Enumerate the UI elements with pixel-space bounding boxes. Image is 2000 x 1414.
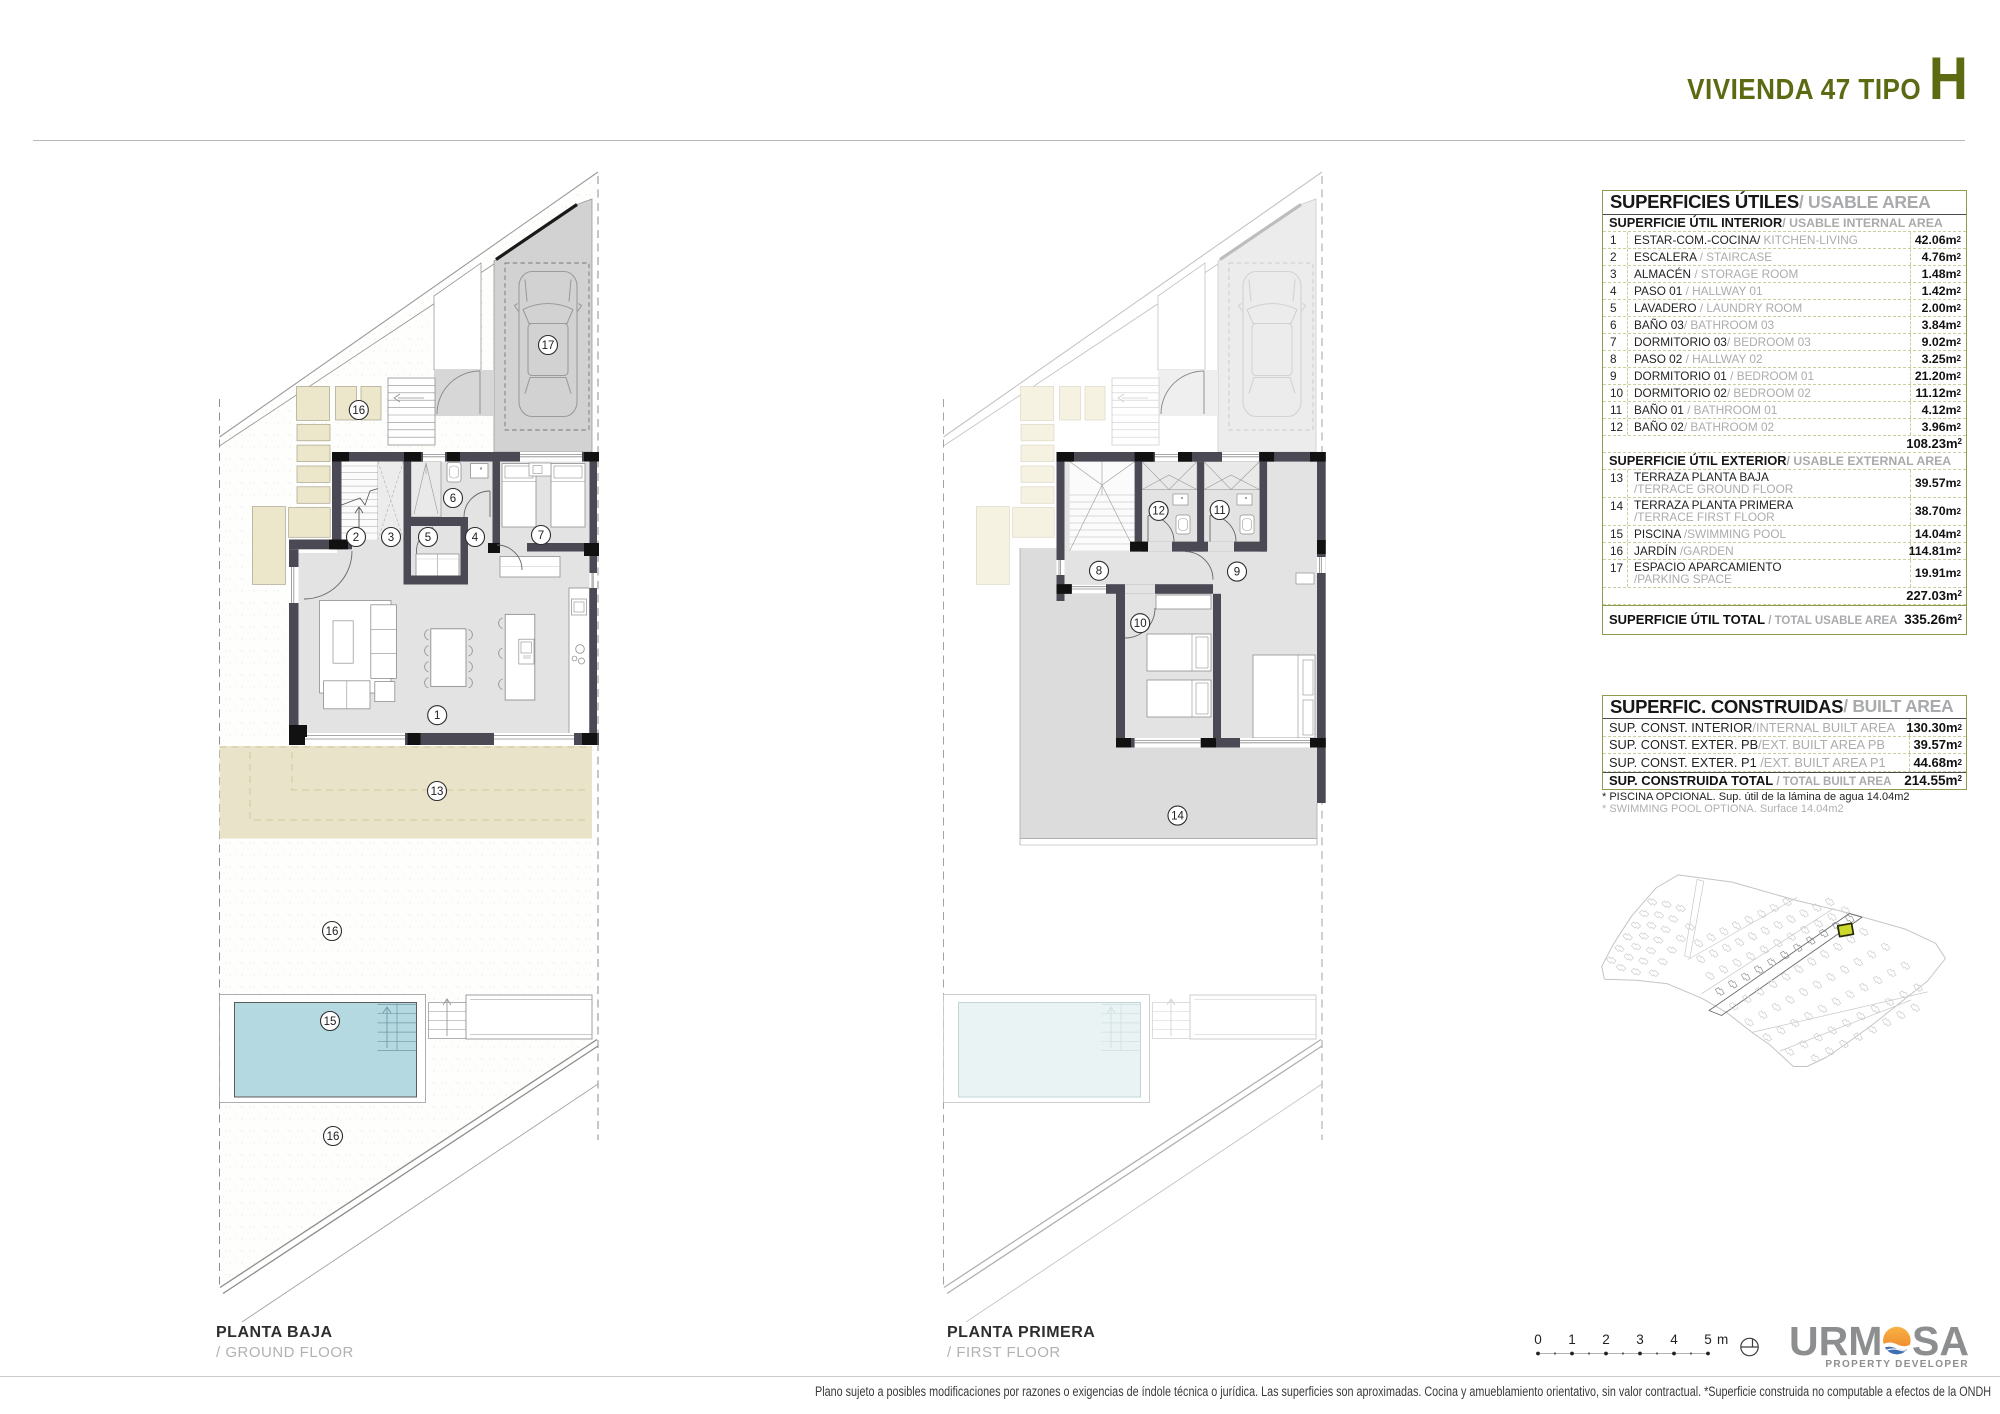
svg-text:9: 9	[1234, 566, 1240, 578]
svg-text:3: 3	[388, 532, 394, 544]
svg-text:13: 13	[431, 786, 444, 798]
svg-text:15: 15	[324, 1016, 337, 1028]
svg-text:3: 3	[1636, 1332, 1644, 1347]
svg-text:4: 4	[472, 532, 479, 544]
svg-text:16: 16	[352, 405, 365, 417]
svg-text:4: 4	[1670, 1332, 1678, 1347]
svg-text:1: 1	[1568, 1332, 1576, 1347]
svg-text:8: 8	[1096, 566, 1102, 578]
svg-text:2: 2	[353, 532, 359, 544]
svg-text:1: 1	[434, 710, 440, 722]
svg-text:2: 2	[1602, 1332, 1610, 1347]
svg-text:m: m	[1717, 1332, 1728, 1347]
svg-text:16: 16	[327, 1131, 340, 1143]
svg-text:7: 7	[538, 530, 544, 542]
svg-text:11: 11	[1214, 505, 1226, 517]
svg-text:5: 5	[1704, 1332, 1712, 1347]
svg-text:0: 0	[1534, 1332, 1542, 1347]
svg-text:14: 14	[1171, 810, 1184, 822]
svg-text:17: 17	[542, 340, 555, 352]
svg-text:6: 6	[450, 493, 456, 505]
svg-text:16: 16	[326, 926, 339, 938]
svg-text:12: 12	[1152, 506, 1165, 518]
svg-text:5: 5	[425, 532, 431, 544]
svg-text:10: 10	[1134, 618, 1147, 630]
